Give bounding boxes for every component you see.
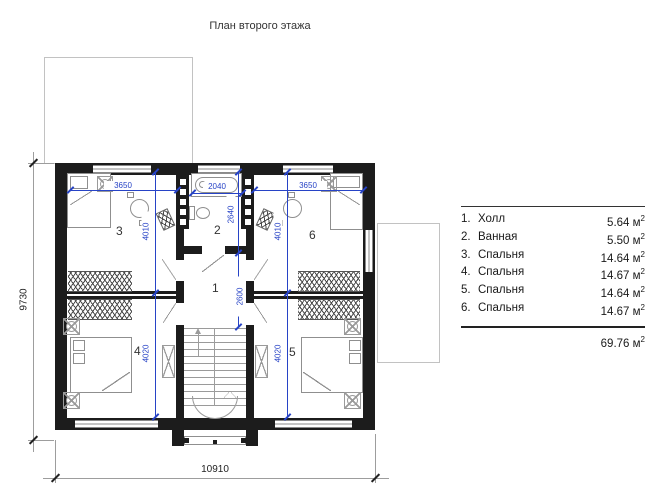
page-title: План второго этажа xyxy=(150,20,370,32)
dimline-bedroom3-width xyxy=(70,190,177,191)
staircase-up-arrow-head xyxy=(195,328,201,334)
legend-top-rule xyxy=(461,206,645,207)
bed-bedroom4-pillow-a xyxy=(73,340,85,351)
window-bedroom6-side xyxy=(365,230,373,272)
chair-bedroom3-a xyxy=(127,192,134,198)
wall-left xyxy=(55,163,67,430)
terrace-roof-outline xyxy=(44,57,193,164)
dim-bedroom5-height: 4020 xyxy=(274,334,283,374)
wall-stair-right xyxy=(246,325,254,430)
desk-bedroom6 xyxy=(256,208,276,231)
dim-overall-height: 9730 xyxy=(19,280,30,320)
window-bedroom3 xyxy=(93,165,151,173)
room-number-bedroom3: 3 xyxy=(116,224,123,238)
dim-bathroom-height: 2640 xyxy=(227,195,236,235)
wall-stair-left xyxy=(176,325,184,430)
porch-jamb-right xyxy=(246,430,258,446)
legend-row: 4. Спальня 14.67 м2 xyxy=(461,265,645,283)
wardrobe-bedroom3 xyxy=(68,271,132,292)
legend-total-rule xyxy=(461,326,645,328)
dim-hall-height: 2600 xyxy=(236,277,245,317)
wall-bath-left xyxy=(176,229,184,260)
wall-bath-bottom-left xyxy=(176,246,202,254)
wall-hall-left xyxy=(176,281,184,303)
dim-bedroom3-height: 4010 xyxy=(142,212,151,252)
plant-bedroom4-a xyxy=(63,318,80,335)
toilet-tank xyxy=(189,206,195,220)
room-number-bedroom6: 6 xyxy=(309,228,316,242)
toilet-bowl xyxy=(196,207,210,219)
room-number-bathroom: 2 xyxy=(214,223,221,237)
legend-row: 1. Холл 5.64 м2 xyxy=(461,212,645,230)
legend-row: 6. Спальня 14.67 м2 xyxy=(461,301,645,319)
vent-shaft-right xyxy=(241,175,254,229)
bed-bedroom4-fold xyxy=(102,372,130,391)
dim-overall-width: 10910 xyxy=(190,464,240,475)
bed-bedroom5-fold xyxy=(303,372,331,391)
desk-bedroom3 xyxy=(156,208,176,231)
dim-bathroom-width: 2040 xyxy=(203,182,231,191)
porch-block-center xyxy=(213,440,217,444)
wall-hall-right xyxy=(246,281,254,303)
bed-bedroom6-pillow xyxy=(333,176,360,188)
staircase-center-line xyxy=(214,328,215,406)
door-swing-bedroom5 xyxy=(254,303,267,323)
bed-bedroom6-fold xyxy=(338,191,360,205)
side-roof-outline xyxy=(377,223,440,363)
radiator-right xyxy=(255,345,268,378)
dim-bedroom4-height: 4020 xyxy=(142,334,151,374)
plant-bedroom5-b xyxy=(344,392,361,409)
window-bathroom xyxy=(198,165,240,173)
room-number-bedroom5: 5 xyxy=(289,345,296,359)
room-number-hall: 1 xyxy=(212,281,219,295)
wardrobe-bedroom5 xyxy=(298,299,360,320)
dimline-overall-width xyxy=(43,478,389,479)
window-bedroom5 xyxy=(275,420,352,428)
legend-row: 5. Спальня 14.64 м2 xyxy=(461,283,645,301)
legend-row: 2. Ванная 5.50 м2 xyxy=(461,230,645,248)
plant-bedroom4-b xyxy=(63,392,80,409)
chair-bedroom6-a xyxy=(288,192,295,198)
staircase-up-arrow-line xyxy=(198,334,199,356)
bed-bedroom3-fold xyxy=(70,191,92,205)
legend-total: 69.76 м2 xyxy=(461,333,645,351)
dim-bedroom6-height: 4010 xyxy=(274,212,283,252)
room-legend: 1. Холл 5.64 м2 2. Ванная 5.50 м2 3. Спа… xyxy=(461,206,645,351)
door-swing-bedroom6 xyxy=(254,259,268,280)
dim-bedroom6-width: 3650 xyxy=(289,181,327,190)
dim-bedroom3-width: 3650 xyxy=(104,181,142,190)
floor-plan-canvas: План второго этажа xyxy=(0,0,668,502)
legend-row: 3. Спальня 14.64 м2 xyxy=(461,248,645,266)
bed-bedroom4-pillow-b xyxy=(73,353,85,364)
porch-jamb-left xyxy=(172,430,184,446)
dimline-overall-height xyxy=(33,152,34,452)
porch-block-left xyxy=(184,438,189,443)
wardrobe-bedroom6 xyxy=(298,271,360,292)
plant-bedroom5-a xyxy=(344,318,361,335)
door-swing-bedroom3 xyxy=(162,259,176,280)
table-bedroom6 xyxy=(283,199,302,218)
staircase-curve xyxy=(192,396,238,419)
wall-right xyxy=(363,163,375,430)
dimline-bedroom6-width xyxy=(254,190,363,191)
door-swing-bedroom4 xyxy=(163,303,176,323)
bed-bedroom5-pillow-a xyxy=(349,340,361,351)
wardrobe-bedroom4 xyxy=(68,299,132,320)
bed-bedroom5-pillow-b xyxy=(349,353,361,364)
door-swing-bathroom xyxy=(202,255,224,272)
porch-block-right xyxy=(241,438,246,443)
radiator-left xyxy=(162,345,175,378)
wall-bath-right xyxy=(246,229,254,260)
vent-shaft-left xyxy=(176,175,189,229)
window-bedroom4 xyxy=(75,420,158,428)
room-number-bedroom4: 4 xyxy=(134,344,141,358)
